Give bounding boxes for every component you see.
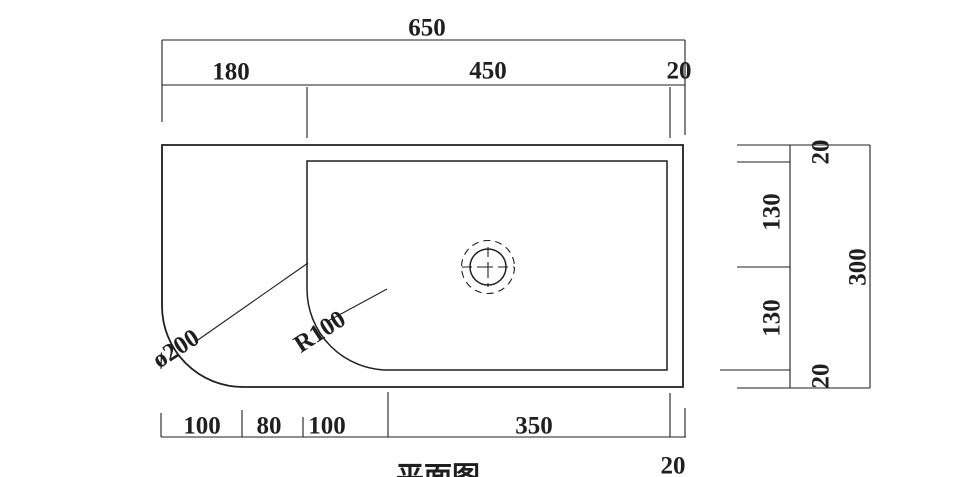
dim-label-20-bottom-right: 20 — [661, 454, 686, 477]
diameter-leader-line — [195, 263, 308, 342]
cad-plan-view-drawing: 650 180 450 20 100 80 100 350 20 20 130 … — [0, 0, 971, 477]
dim-label-20-top: 20 — [667, 59, 692, 84]
dim-label-180: 180 — [212, 60, 250, 85]
basin-outline — [307, 161, 667, 370]
dim-label-side-130-top: 130 — [760, 193, 785, 231]
dim-label-side-20-bottom: 20 — [809, 364, 834, 389]
view-title-partial: 平面图 — [396, 464, 480, 477]
dim-label-80: 80 — [257, 414, 282, 439]
dim-label-350: 350 — [515, 414, 553, 439]
dim-label-450: 450 — [469, 59, 507, 84]
dim-label-100-left: 100 — [183, 414, 221, 439]
counter-outline — [162, 145, 683, 387]
dim-label-side-20-top: 20 — [809, 140, 834, 165]
dim-label-100-right: 100 — [308, 414, 346, 439]
dim-label-side-total-300: 300 — [846, 248, 871, 286]
dim-label-side-130-bottom: 130 — [760, 299, 785, 337]
dim-label-total-width: 650 — [408, 16, 446, 41]
